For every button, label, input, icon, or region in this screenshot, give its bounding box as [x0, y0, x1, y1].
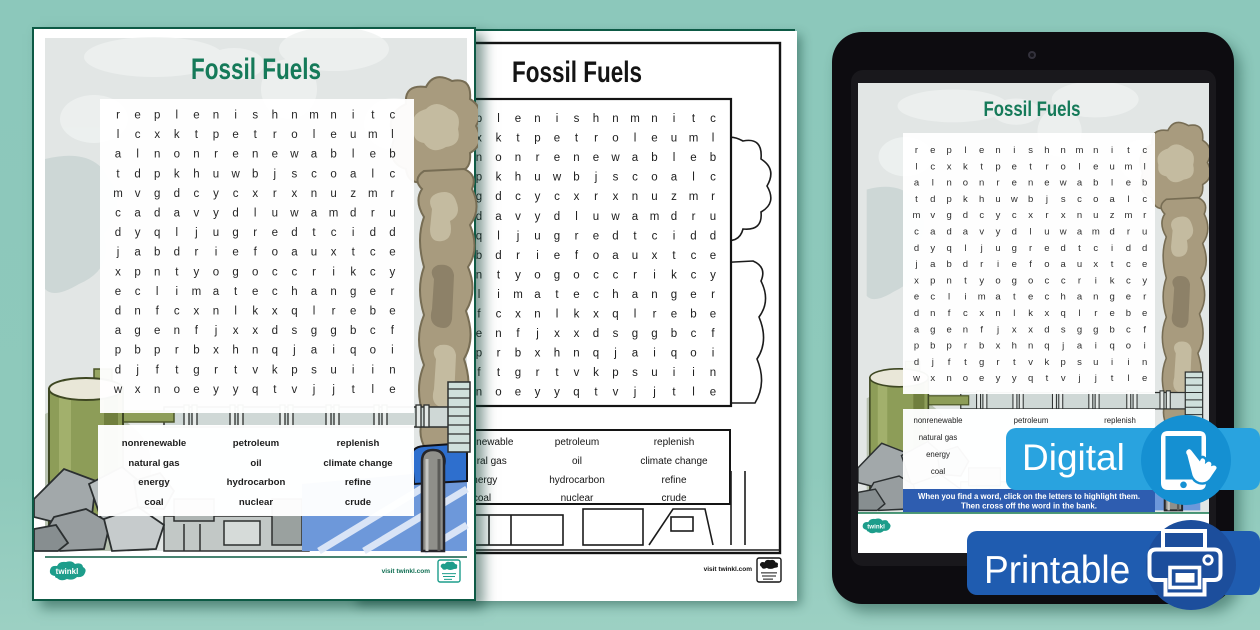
svg-text:djftgrtvkpsuiin: djftgrtvkpsuiin	[115, 364, 396, 376]
svg-text:natural gas: natural gas	[128, 458, 179, 469]
svg-text:dyqljugredtcidd: dyqljugredtcidd	[115, 227, 396, 239]
svg-text:replenishnmnitc: replenishnmnitc	[116, 110, 395, 122]
svg-text:visit twinkl.com: visit twinkl.com	[382, 568, 431, 575]
svg-text:petroleum: petroleum	[555, 437, 599, 448]
svg-text:climate change: climate change	[323, 458, 392, 469]
svg-text:replenish: replenish	[654, 437, 695, 448]
svg-text:oil: oil	[250, 458, 261, 469]
svg-text:tdpkhuwbjscoalc: tdpkhuwbjscoalc	[438, 172, 716, 184]
svg-text:alnonrenewableb: alnonrenewableb	[115, 149, 396, 161]
svg-text:mvgdcycxrxnuzmr: mvgdcycxrxnuzmr	[113, 188, 394, 200]
svg-text:When you find a word, click on: When you find a word, click on the lette…	[918, 492, 1140, 501]
svg-text:dnfcxnlkxqlrebe: dnfcxnlkxqlrebe	[914, 308, 1147, 319]
svg-text:twinkl: twinkl	[56, 567, 79, 576]
svg-text:tdpkhuwbjscoalc: tdpkhuwbjscoalc	[915, 194, 1147, 205]
svg-text:nonrenewable: nonrenewable	[914, 416, 963, 425]
svg-text:wxnoeyyqtvjjtle: wxnoeyyqtvjjtle	[912, 373, 1147, 384]
svg-text:energy: energy	[138, 477, 170, 488]
svg-text:coal: coal	[144, 497, 163, 508]
svg-text:nonrenewable: nonrenewable	[122, 438, 187, 449]
svg-text:tdpkhuwbjscoalc: tdpkhuwbjscoalc	[116, 168, 395, 180]
svg-text:visit twinkl.com: visit twinkl.com	[704, 566, 753, 573]
svg-text:refine: refine	[345, 477, 371, 488]
svg-text:hydrocarbon: hydrocarbon	[227, 477, 286, 488]
svg-text:dyqljugredtcidd: dyqljugredtcidd	[437, 230, 716, 242]
svg-text:mvgdcycxrxnuzmr: mvgdcycxrxnuzmr	[913, 210, 1147, 221]
svg-text:agenfjxxdsggbcf: agenfjxxdsggbcf	[437, 328, 716, 340]
svg-text:natural gas: natural gas	[919, 433, 958, 442]
svg-text:nuclear: nuclear	[561, 493, 594, 504]
svg-text:Then cross off the word in the: Then cross off the word in the bank.	[961, 502, 1097, 511]
svg-text:jabdriefoauxtce: jabdriefoauxtce	[914, 259, 1147, 270]
svg-text:cadavydluwamdru: cadavydluwamdru	[115, 208, 395, 220]
svg-text:Fossil Fuels: Fossil Fuels	[191, 52, 321, 86]
svg-text:alnonrenewableb: alnonrenewableb	[914, 178, 1147, 189]
svg-text:cadavydluwamdru: cadavydluwamdru	[914, 227, 1147, 238]
svg-text:agenfjxxdsggbcf: agenfjxxdsggbcf	[914, 324, 1147, 335]
svg-text:replenishnmnitc: replenishnmnitc	[915, 145, 1147, 156]
svg-text:dnfcxnlkxqlrebe: dnfcxnlkxqlrebe	[115, 306, 396, 318]
svg-text:djftgrtvkpsuiin: djftgrtvkpsuiin	[914, 357, 1147, 368]
svg-text:eclimatechanger: eclimatechanger	[914, 292, 1146, 303]
svg-text:replenishnmnitc: replenishnmnitc	[438, 113, 716, 125]
svg-text:dyqljugredtcidd: dyqljugredtcidd	[914, 243, 1147, 254]
svg-text:pbprbxhnqjaiqoi: pbprbxhnqjaiqoi	[437, 348, 714, 360]
svg-text:twinkl: twinkl	[867, 523, 885, 530]
svg-text:Fossil Fuels: Fossil Fuels	[983, 98, 1080, 121]
svg-text:xpntyogoccrikcy: xpntyogoccrikcy	[437, 269, 716, 281]
svg-text:alnonrenewableb: alnonrenewableb	[437, 152, 716, 164]
svg-text:eclimatechanger: eclimatechanger	[115, 286, 395, 298]
svg-text:djftgrtvkpsuiin: djftgrtvkpsuiin	[437, 367, 716, 379]
svg-text:cadavydluwamdru: cadavydluwamdru	[437, 211, 716, 223]
svg-text:replenish: replenish	[337, 438, 380, 449]
svg-text:hydrocarbon: hydrocarbon	[549, 475, 605, 486]
svg-text:coal: coal	[931, 467, 946, 476]
svg-text:dnfcxnlkxqlrebe: dnfcxnlkxqlrebe	[437, 309, 716, 321]
svg-text:petroleum: petroleum	[1014, 416, 1049, 425]
svg-text:energy: energy	[926, 450, 950, 459]
svg-text:agenfjxxdsggbcf: agenfjxxdsggbcf	[115, 325, 395, 337]
svg-text:pbprbxhnqjaiqoi: pbprbxhnqjaiqoi	[914, 341, 1146, 352]
svg-text:replenish: replenish	[1104, 416, 1136, 425]
svg-text:eclimatechanger: eclimatechanger	[437, 289, 715, 301]
svg-text:nuclear: nuclear	[239, 497, 273, 508]
svg-text:lcxktpetroleuml: lcxktpetroleuml	[117, 129, 394, 141]
svg-text:jabdriefoauxtce: jabdriefoauxtce	[116, 247, 396, 259]
svg-text:lcxktpetroleuml: lcxktpetroleuml	[915, 161, 1145, 172]
svg-text:oil: oil	[572, 456, 582, 467]
svg-text:climate change: climate change	[640, 456, 708, 467]
svg-text:crude: crude	[661, 493, 686, 504]
svg-text:petroleum: petroleum	[233, 438, 279, 449]
svg-text:crude: crude	[345, 497, 371, 508]
svg-text:refine: refine	[661, 475, 686, 486]
svg-text:pbprbxhnqjaiqoi: pbprbxhnqjaiqoi	[115, 345, 394, 357]
svg-text:wxnoeyyqtvjjtle: wxnoeyyqtvjjtle	[113, 384, 396, 396]
svg-text:lcxktpetroleuml: lcxktpetroleuml	[439, 133, 715, 145]
svg-text:xpntyogoccrikcy: xpntyogoccrikcy	[914, 275, 1147, 286]
svg-text:Fossil Fuels: Fossil Fuels	[512, 55, 642, 89]
svg-text:jabdriefoauxtce: jabdriefoauxtce	[438, 250, 716, 262]
svg-text:xpntyogoccrikcy: xpntyogoccrikcy	[115, 266, 395, 278]
